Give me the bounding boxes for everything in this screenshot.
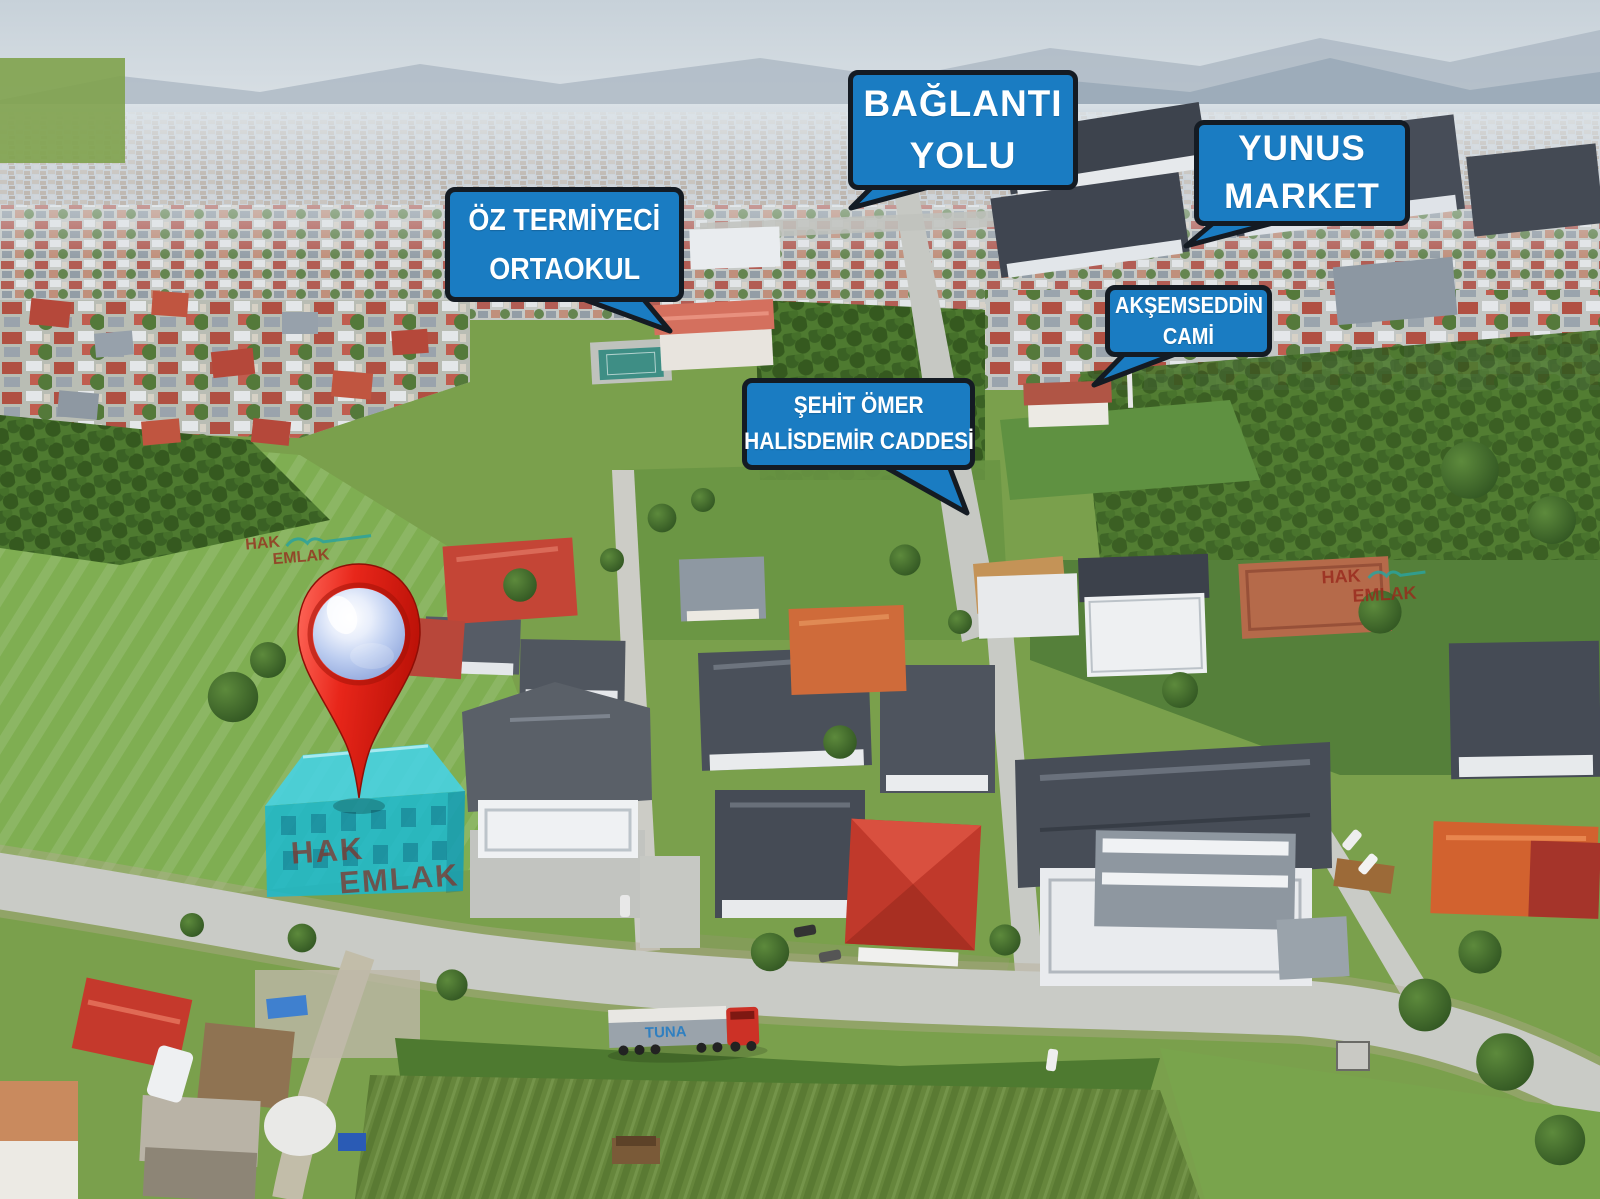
callout-line: MARKET xyxy=(1224,175,1380,219)
callout-line: ŞEHİT ÖMER xyxy=(794,391,924,421)
callout-line: HALİSDEMİR CADDESİ xyxy=(744,427,974,457)
aerial-listing-photo: TUNA BAĞLANTI YOLU YUNUS MARKET ÖZ TERMİ… xyxy=(0,0,1600,1199)
callout-line: CAMİ xyxy=(1163,322,1214,351)
callout-line: ORTAOKUL xyxy=(489,250,640,289)
blue-tarp xyxy=(266,995,308,1019)
truck-logo-text: TUNA xyxy=(645,1023,687,1041)
callout-line: YUNUS xyxy=(1238,127,1366,171)
callout-oz-termiyeci-ortaokul: ÖZ TERMİYECİ ORTAOKUL xyxy=(445,187,684,302)
callout-line: AKŞEMSEDDİN xyxy=(1115,291,1263,320)
orange-roof-house xyxy=(1430,821,1600,919)
callout-sehit-omer-halisdemir-caddesi: ŞEHİT ÖMER HALİSDEMİR CADDESİ xyxy=(742,378,975,470)
truck: TUNA xyxy=(606,1004,768,1065)
callout-baglanti-yolu: BAĞLANTI YOLU xyxy=(848,70,1078,190)
apartment-block xyxy=(462,682,652,918)
white-tarp xyxy=(264,1096,336,1156)
tractor xyxy=(338,1133,366,1151)
parking-lot xyxy=(640,856,700,948)
bus-shelter xyxy=(1337,1042,1369,1070)
callout-line: BAĞLANTI xyxy=(863,81,1062,127)
callout-aksemseddin-cami: AKŞEMSEDDİN CAMİ xyxy=(1105,285,1272,357)
callout-yunus-market: YUNUS MARKET xyxy=(1194,120,1410,226)
location-pin xyxy=(292,560,426,820)
callout-line: ÖZ TERMİYECİ xyxy=(469,201,661,240)
callout-line: YOLU xyxy=(910,133,1017,179)
